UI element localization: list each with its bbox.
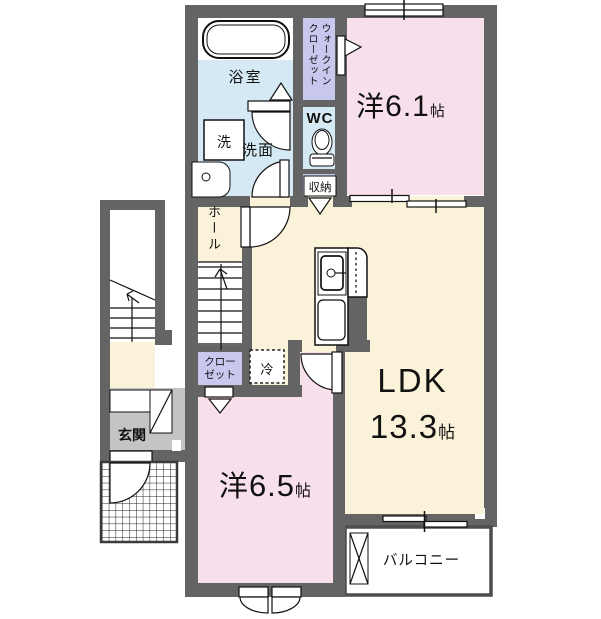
bathtub (203, 21, 289, 58)
label-closet: クローゼット (198, 356, 242, 382)
kitchen-counter (348, 248, 367, 297)
vanity-basin (192, 162, 230, 197)
balcony-utility-box (350, 533, 368, 584)
shoe-cabinet (110, 390, 150, 412)
label-balcony: バルコニー (374, 549, 469, 570)
label-ldk-size: 13.3帖 (345, 408, 480, 446)
label-western-room-1: 洋6.1帖 (338, 85, 463, 125)
external-stair-annex (100, 200, 185, 462)
label-storage: 収納 (304, 179, 336, 195)
kitchen-cabinet (318, 300, 345, 340)
label-ldk: LDK (350, 362, 475, 400)
label-wc: WC (303, 110, 337, 127)
label-western-room-2: 洋6.5帖 (200, 463, 330, 505)
toilet (310, 129, 334, 166)
label-bathroom: 浴室 (198, 66, 293, 87)
label-washroom: 洗面 (220, 139, 296, 160)
entrance-porch (101, 462, 177, 542)
entrance-door-panel (110, 451, 152, 462)
faucet (327, 269, 335, 277)
label-hall: ホール (204, 205, 223, 257)
floor-plan: 浴室 洗 洗面 WC ウォークインクローゼット 収納 ホール クローゼット 冷 … (0, 0, 601, 619)
floor-plan-drawing (0, 0, 601, 619)
label-entrance: 玄関 (110, 425, 154, 445)
label-walk-in-closet: ウォークインクローゼット (305, 23, 331, 101)
label-refrigerator: 冷 (250, 359, 284, 378)
stairwell-floor (198, 262, 242, 352)
